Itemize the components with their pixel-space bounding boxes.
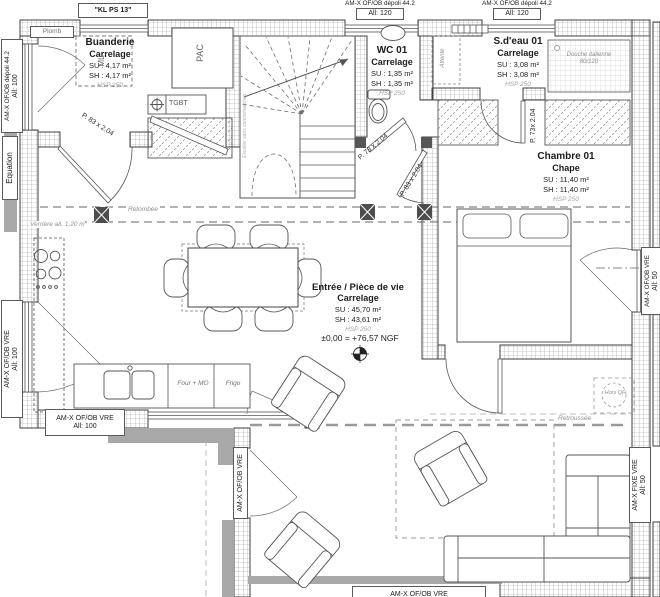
- window-label-top-1-sill: All: 120: [356, 8, 404, 20]
- retroussee-label: Retroussée: [556, 415, 593, 422]
- bed: [457, 209, 571, 342]
- oven-label: Four + MO: [171, 380, 215, 387]
- room-sdeau-sh: SH : 3,08 m²: [472, 70, 564, 79]
- window-label-left-bottom-text: AM-X OF/OB VRE: [4, 330, 12, 388]
- room-buanderie: Buanderie Carrelage SU : 4,17 m² SH : 4,…: [58, 37, 162, 90]
- window-label-bottom-left-sill: All: 100: [73, 423, 96, 431]
- room-chambre-finish: Chape: [518, 163, 614, 174]
- pac-label: PAC: [196, 28, 210, 78]
- towel-radiator: [452, 25, 488, 33]
- room-chambre-sh: SH : 11,40 m²: [518, 185, 614, 194]
- attente-label: Attente: [440, 36, 450, 80]
- window-label-left-top-sill: All: 100: [12, 74, 20, 97]
- window-label-top-2: AM-X OF/OB dépoli 44.2 All: 120: [473, 1, 561, 20]
- window-label-extension-left: AM-X OF/OB VRE: [233, 447, 248, 519]
- equation-label: Equation: [2, 136, 18, 200]
- room-sejour: Entrée / Pièce de vie Carrelage SU : 45,…: [300, 282, 416, 334]
- window-label-bottom-center: AM-X OF/OB VRE: [352, 586, 486, 597]
- door-label-chambre: P. 73x 2.04: [530, 108, 538, 143]
- window-label-top-2-text: AM-X OF/OB dépoli 44.2: [473, 1, 561, 8]
- verriere-label: Verrière all. 1,20 m: [30, 221, 85, 228]
- window-label-left-bottom-sill: All: 100: [12, 347, 20, 370]
- window-label-bottom-left-text: AM-X OF/OB VRE: [56, 415, 114, 423]
- room-wc-name: WC 01: [352, 45, 432, 57]
- shower-label-line1: Douche italienne: [549, 52, 629, 59]
- sofa-bottom: [444, 536, 630, 582]
- window-label-left-bottom: AM-X OF/OB VRE All: 100: [1, 300, 23, 418]
- dining-set: [164, 225, 321, 331]
- window-label-left-top-text: AM-X OF/OB dépoli 44.2: [5, 51, 12, 121]
- window-label-right-mid-text: AM-X OF/OB VRE: [645, 255, 652, 307]
- room-wc-su: SU : 1,35 m²: [352, 69, 432, 78]
- room-chambre-hsp: HSP 250: [518, 196, 614, 204]
- room-buanderie-sh: SH : 4,17 m²: [58, 71, 162, 80]
- staircase: [240, 36, 355, 198]
- room-sejour-finish: Carrelage: [300, 293, 416, 304]
- shower-label-line2: 80/120: [549, 59, 629, 66]
- room-chambre-su: SU : 11,40 m²: [518, 175, 614, 184]
- room-chambre-name: Chambre 01: [518, 151, 614, 163]
- level-annotation: ±0,00 = +76,57 NGF: [308, 334, 412, 343]
- window-label-right-mid-sill: All: 50: [652, 271, 660, 290]
- room-wc-hsp: HSP 250: [352, 90, 432, 98]
- window-label-bottom-left: AM-X OF/OB VRE All: 100: [45, 409, 125, 436]
- room-sdeau-name: S.d'eau 01: [472, 36, 564, 48]
- tgbt-label: TGBT: [169, 100, 188, 108]
- room-buanderie-hsp: HSP 250: [58, 82, 162, 90]
- washing-machine-label: ML: [98, 46, 110, 76]
- room-buanderie-name: Buanderie: [58, 37, 162, 49]
- room-sdeau-hsp: HSP 250: [472, 81, 564, 89]
- hors-qf-label: Hors QF: [595, 390, 635, 396]
- room-wc-finish: Carrelage: [352, 57, 432, 68]
- hand-basin: [381, 26, 405, 41]
- fridge-label: Frigo: [217, 380, 249, 387]
- window-label-right-bottom-sill: All: 50: [640, 475, 648, 494]
- window-label-left-top: AM-X OF/OB dépoli 44.2 All: 100: [1, 39, 23, 133]
- retombee-label: Retombée: [126, 206, 160, 213]
- room-buanderie-su: SU : 4,17 m²: [58, 61, 162, 70]
- door-tag-kl: "KL PS 13": [78, 3, 148, 18]
- room-wc-sh: SH : 1,35 m²: [352, 79, 432, 88]
- room-sejour-sh: SH : 43,61 m²: [300, 315, 416, 324]
- window-label-top-2-sill: All: 120: [493, 8, 541, 20]
- floor-plan: "KL PS 13" AM-X OF/OB dépoli 44.2 All: 1…: [0, 0, 660, 597]
- shower-label: Douche italienne 80/120: [549, 52, 629, 65]
- room-wc: WC 01 Carrelage SU : 1,35 m² SH : 1,35 m…: [352, 45, 432, 98]
- window-label-right-bottom: AM-X FIXE VRE All: 50: [629, 447, 651, 523]
- room-buanderie-finish: Carrelage: [58, 49, 162, 60]
- level-marker: [351, 345, 369, 363]
- window-label-top-1-text: AM-X OF/OB dépoli 44.2: [336, 1, 424, 8]
- window-label-right-mid: AM-X OF/OB VRE All: 50: [641, 247, 660, 315]
- window-label-right-bottom-text: AM-X FIXE VRE: [632, 459, 640, 510]
- room-sejour-name: Entrée / Pièce de vie: [300, 282, 416, 293]
- room-sejour-su: SU : 45,70 m²: [300, 305, 416, 314]
- window-label-top-1: AM-X OF/OB dépoli 44.2 All: 120: [336, 1, 424, 20]
- stair-note-label: Escalier sans contremarches: [243, 58, 251, 158]
- room-chambre: Chambre 01 Chape SU : 11,40 m² SH : 11,4…: [518, 151, 614, 204]
